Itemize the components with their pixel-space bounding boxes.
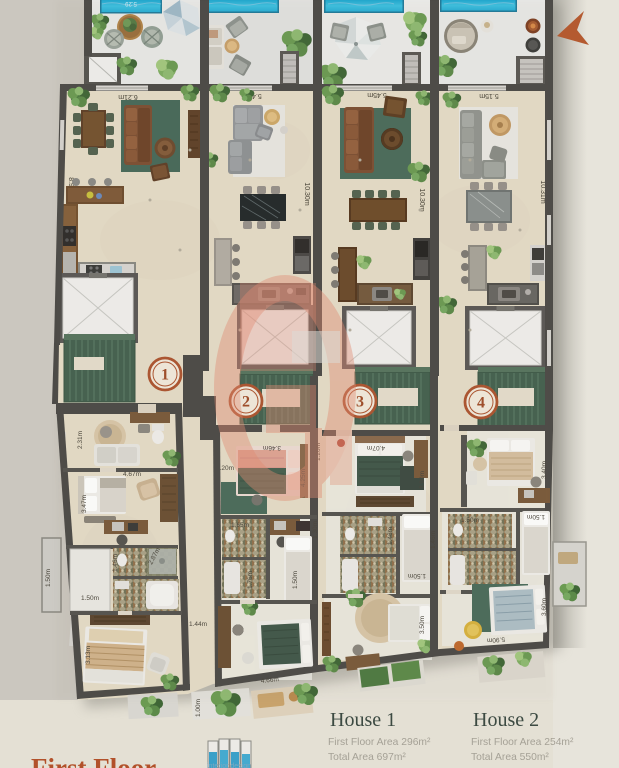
svg-text:1.50m: 1.50m	[45, 569, 52, 587]
svg-text:Total Area 697m²: Total Area 697m²	[328, 752, 406, 763]
svg-text:interior design: interior design	[207, 763, 251, 768]
svg-text:1.00m: 1.00m	[195, 699, 202, 717]
svg-text:First Floor: First Floor	[31, 753, 156, 768]
svg-text:House 1: House 1	[330, 709, 396, 731]
svg-text:First Floor Area 254m²: First Floor Area 254m²	[471, 737, 574, 748]
svg-text:House 2: House 2	[473, 709, 539, 731]
svg-text:First Floor Area 296m²: First Floor Area 296m²	[328, 737, 431, 748]
svg-text:Total Area 550m²: Total Area 550m²	[471, 752, 549, 763]
